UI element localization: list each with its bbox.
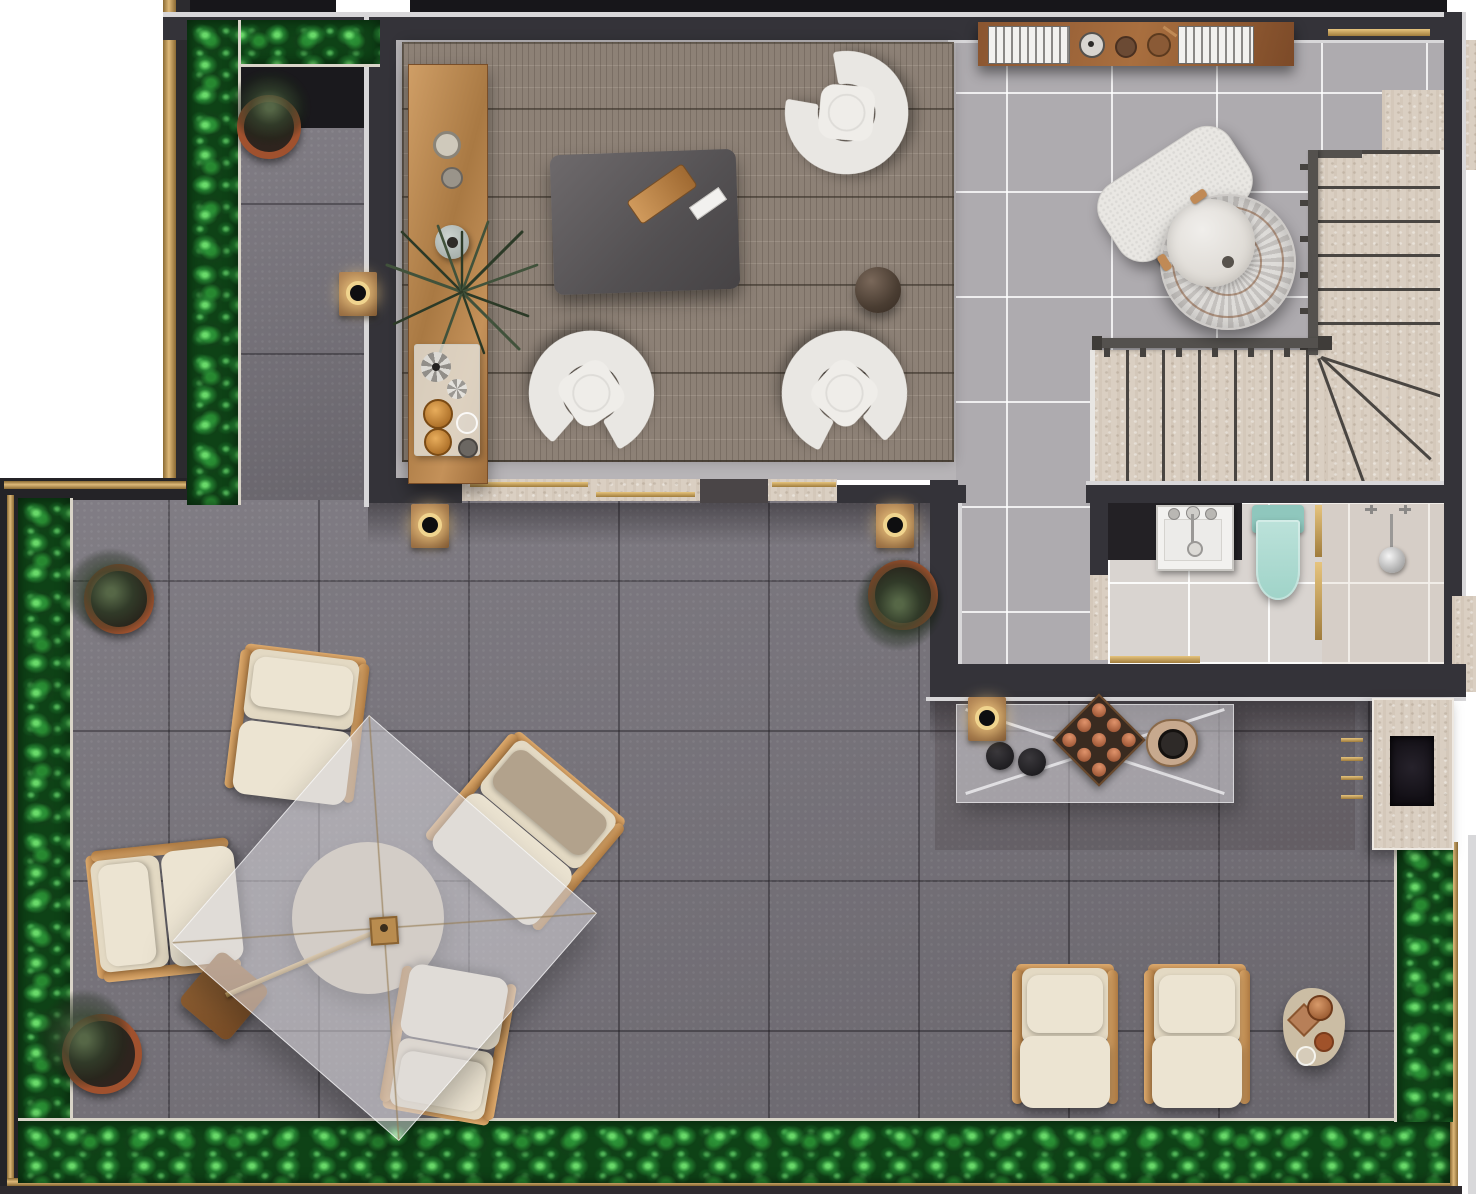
shelf-vase [1147, 33, 1171, 57]
console-cup [441, 167, 463, 189]
copper-cup [1074, 715, 1094, 735]
exterior-edge-strip [1468, 835, 1476, 1194]
bath-door-track [1110, 656, 1200, 663]
wall-shadow [368, 503, 934, 545]
woven-swivel-chair [1160, 194, 1296, 330]
brass-slat [1341, 757, 1363, 761]
books-row [1178, 26, 1254, 64]
copper-cup [1104, 715, 1124, 735]
sink-knob [1168, 508, 1180, 520]
door-opening-gap [700, 479, 768, 503]
books-row [988, 26, 1070, 64]
stair-tread [1316, 186, 1444, 189]
chair-pillow [97, 861, 157, 968]
glass-partition-brass [1315, 505, 1322, 557]
brass-slat [1341, 738, 1363, 742]
wall-light-ring [975, 706, 999, 730]
fireplace-opening [1390, 736, 1434, 806]
boucle-armchair [517, 323, 664, 470]
round-pouf [855, 267, 901, 313]
clock-center [1088, 41, 1094, 47]
lounge-chair [1144, 964, 1250, 1110]
shower-head [1379, 547, 1405, 573]
boucle-armchair [769, 321, 920, 472]
stair-tread [1198, 350, 1201, 485]
wall-light [411, 504, 449, 548]
railing-horizontal [1096, 338, 1328, 348]
living-south-wall-b [837, 485, 966, 503]
shower-floor-tint [1322, 503, 1444, 664]
gold-wall-frame-connector [4, 481, 186, 489]
chair-pillow [1159, 975, 1235, 1033]
copper-cup [1089, 759, 1109, 779]
floor-plan-canvas [0, 0, 1476, 1194]
railing-balusters-horizontal [1104, 348, 1320, 357]
stair-upper-flight [1316, 150, 1444, 500]
amber-cup [423, 399, 453, 429]
sink-drain [1187, 541, 1203, 557]
sink-knob [1205, 508, 1217, 520]
top-edge-decor [182, 0, 336, 12]
swivel-button [1222, 256, 1234, 268]
white-ring-cup [1296, 1046, 1316, 1066]
stair-stringer-trim [1090, 350, 1095, 485]
wall-light-ring [418, 513, 442, 537]
wall-light-ring [346, 281, 370, 305]
chair-seat [1020, 1036, 1110, 1108]
top-edge-decor [410, 0, 1447, 12]
hedge-right [1394, 842, 1453, 1122]
stair-tread [1316, 322, 1444, 325]
copper-cup [1074, 745, 1094, 765]
glass-cup [456, 412, 478, 434]
copper-bowl [1307, 995, 1333, 1021]
wall-light [876, 504, 914, 548]
shower-control [1404, 505, 1407, 514]
stair-tread [1316, 254, 1444, 257]
stair-tread [1316, 288, 1444, 291]
toilet-bowl [1256, 520, 1300, 600]
copper-cup [1314, 1032, 1334, 1052]
swivel-cushion [1167, 199, 1255, 287]
south-wall [930, 664, 1466, 697]
decor-bowl-center [1158, 729, 1188, 759]
shower-control [1370, 505, 1373, 514]
sliding-door-track [596, 492, 695, 497]
pinwheel-bowl-center [432, 363, 440, 371]
dark-cup [458, 438, 478, 458]
console-cup [433, 131, 461, 159]
terrace-path-pavers [238, 128, 368, 505]
railing-newel [1318, 336, 1332, 350]
bath-north-wall [1086, 485, 1444, 503]
brass-slat [1341, 776, 1363, 780]
black-plate [986, 742, 1014, 770]
corner-wall-trim [958, 503, 962, 664]
gold-wall-frame-left-lower [7, 495, 14, 1187]
copper-cup [1104, 745, 1124, 765]
amber-cup [424, 428, 452, 456]
stair-tread [1234, 350, 1237, 485]
copper-cup [1089, 730, 1109, 750]
stair-tread [1126, 350, 1129, 485]
faucet-stem [1191, 514, 1194, 542]
bath-west-wall [1090, 485, 1108, 575]
black-plate [1018, 748, 1046, 776]
wall-light-ring [883, 513, 907, 537]
stair-tread [1162, 350, 1165, 485]
copper-cup [1118, 730, 1138, 750]
stair-tread [1316, 220, 1444, 223]
olive-bush [846, 548, 952, 660]
east-wall [1444, 12, 1462, 697]
brass-wall-rail [1328, 29, 1430, 36]
sliding-door-track [772, 482, 836, 487]
railing-end-post [1092, 336, 1102, 350]
railing-vertical [1308, 150, 1318, 355]
bath-doorway-threshold [1090, 575, 1108, 660]
shelf-vase [1115, 36, 1137, 58]
chair-seat [1152, 1036, 1242, 1108]
stair-right-trim [1440, 150, 1444, 500]
lounge-chair [1012, 964, 1118, 1110]
stair-tread [1270, 350, 1273, 485]
wall-bottom [0, 1186, 1462, 1194]
copper-cup [1060, 730, 1080, 750]
east-wall-trim [1462, 12, 1466, 697]
wall-light [339, 272, 377, 316]
copper-cup [1089, 701, 1109, 721]
gold-wall-frame-left-upper [163, 0, 176, 492]
railing-balusters-vertical [1300, 160, 1308, 350]
stair-landing [1382, 90, 1444, 152]
glass-partition-brass [1315, 562, 1322, 640]
hedge-bottom [18, 1118, 1450, 1183]
olive-bush [56, 540, 166, 644]
wall-light [968, 697, 1006, 741]
pinwheel-bowl-small [447, 379, 467, 399]
brass-slat [1341, 795, 1363, 799]
chair-pillow [1027, 975, 1103, 1033]
stair-tread [1306, 350, 1309, 485]
